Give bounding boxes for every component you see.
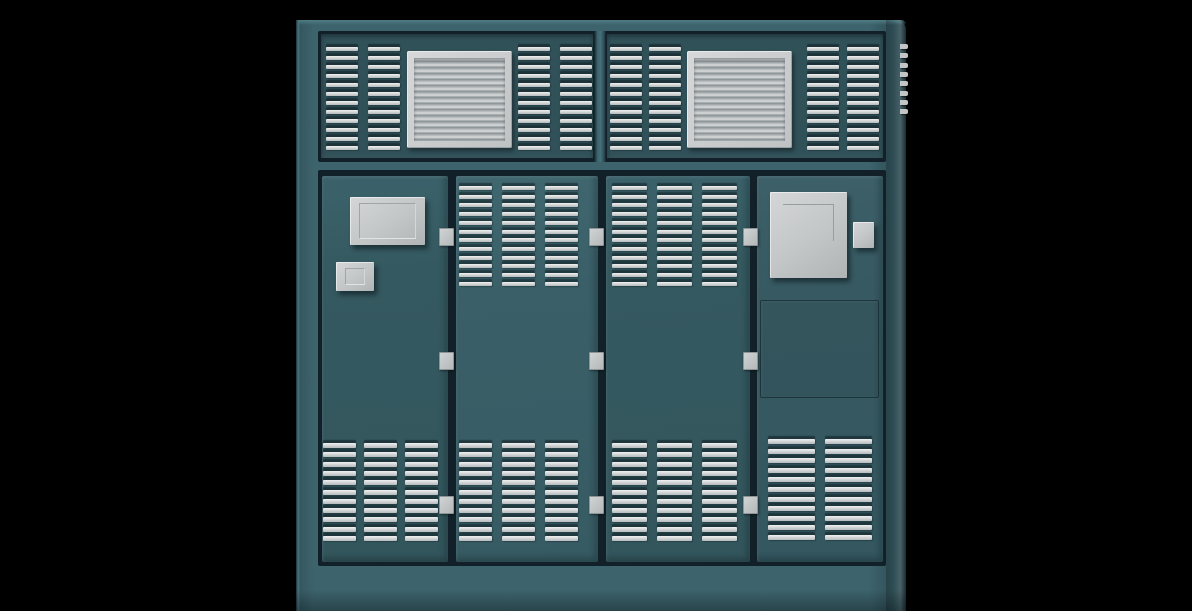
louver-slat bbox=[405, 480, 438, 485]
louver-slat bbox=[847, 56, 879, 60]
louver-slat bbox=[459, 471, 492, 476]
louver-slat bbox=[459, 203, 492, 207]
louver-slat bbox=[825, 458, 872, 463]
louver-slat bbox=[459, 230, 492, 234]
louver-slat bbox=[702, 186, 737, 190]
louver-slat bbox=[502, 230, 535, 234]
louver-slat bbox=[518, 74, 550, 78]
louver-slat bbox=[807, 110, 839, 114]
louver-slat bbox=[459, 527, 492, 532]
door-hinge bbox=[743, 352, 758, 370]
louver-slat bbox=[545, 499, 578, 504]
louver-slat bbox=[649, 92, 681, 96]
louver-slat bbox=[323, 527, 356, 532]
louver-slat bbox=[368, 137, 400, 141]
louver-slat bbox=[612, 203, 647, 207]
side-louver-edge bbox=[900, 109, 908, 114]
louver-slat bbox=[768, 487, 815, 492]
louver-slat bbox=[612, 264, 647, 268]
door4-breaker-box-panel-line bbox=[783, 204, 834, 241]
louver-slat bbox=[502, 203, 535, 207]
door-hinge bbox=[743, 228, 758, 246]
louver-slat bbox=[405, 462, 438, 467]
louver-slat bbox=[545, 536, 578, 541]
louver-slat bbox=[326, 92, 358, 96]
louver-slat bbox=[825, 487, 872, 492]
louver-slat bbox=[702, 471, 737, 476]
top-grille-right bbox=[687, 51, 792, 148]
louver-slat bbox=[702, 282, 737, 286]
louver-slat bbox=[649, 119, 681, 123]
louver-slat bbox=[323, 508, 356, 513]
side-louver-edge bbox=[900, 81, 908, 86]
louver-slat bbox=[459, 212, 492, 216]
louver-slat bbox=[847, 92, 879, 96]
louver-slat bbox=[326, 65, 358, 69]
cabinet bbox=[296, 20, 906, 611]
door-hinge bbox=[439, 496, 454, 514]
louver-slat bbox=[610, 56, 642, 60]
louver-slat bbox=[610, 83, 642, 87]
louver-slat bbox=[649, 65, 681, 69]
louver-slat bbox=[545, 230, 578, 234]
louver-slat bbox=[657, 264, 692, 268]
louver-slat bbox=[326, 137, 358, 141]
louver-slat bbox=[459, 443, 492, 448]
louver-slat bbox=[545, 203, 578, 207]
louver-slat bbox=[502, 247, 535, 251]
louver-slat bbox=[825, 497, 872, 502]
louver-slat bbox=[560, 56, 592, 60]
louver-slat bbox=[657, 452, 692, 457]
louver-slat bbox=[702, 256, 737, 260]
louver-slat bbox=[405, 527, 438, 532]
louver-slat bbox=[459, 256, 492, 260]
louver-slat bbox=[610, 47, 642, 51]
louver-slat bbox=[610, 74, 642, 78]
door1-junction-box-large bbox=[350, 197, 425, 245]
louver-slat bbox=[459, 462, 492, 467]
louver-slat bbox=[502, 256, 535, 260]
louver-slat bbox=[502, 443, 535, 448]
louver-slat bbox=[702, 527, 737, 532]
louver-slat bbox=[825, 449, 872, 454]
louver-slat bbox=[459, 536, 492, 541]
louver-slat bbox=[825, 477, 872, 482]
door-hinge bbox=[589, 352, 604, 370]
louver-slat bbox=[657, 256, 692, 260]
louver-slat bbox=[545, 273, 578, 277]
louver-slat bbox=[502, 499, 535, 504]
louver-slat bbox=[649, 83, 681, 87]
louver-slat bbox=[612, 462, 647, 467]
grille-louvers bbox=[414, 58, 505, 141]
louver-slat bbox=[612, 256, 647, 260]
louver-slat bbox=[612, 247, 647, 251]
louver-slat bbox=[459, 517, 492, 522]
louver-slat bbox=[364, 452, 397, 457]
cabinet-top-bevel bbox=[296, 20, 906, 25]
louver-slat bbox=[847, 119, 879, 123]
louver-slat bbox=[368, 101, 400, 105]
louver-slat bbox=[657, 230, 692, 234]
louver-slat bbox=[368, 47, 400, 51]
louver-slat bbox=[405, 490, 438, 495]
louver-slat bbox=[560, 83, 592, 87]
louver-slat bbox=[326, 83, 358, 87]
louver-slat bbox=[847, 146, 879, 150]
louver-slat bbox=[459, 247, 492, 251]
louver-slat bbox=[657, 443, 692, 448]
louver-slat bbox=[323, 452, 356, 457]
louver-slat bbox=[612, 221, 647, 225]
louver-slat bbox=[545, 471, 578, 476]
louver-slat bbox=[364, 499, 397, 504]
louver-slat bbox=[502, 264, 535, 268]
louver-slat bbox=[518, 83, 550, 87]
louver-slat bbox=[502, 508, 535, 513]
louver-slat bbox=[326, 119, 358, 123]
louver-slat bbox=[326, 47, 358, 51]
louver-slat bbox=[657, 490, 692, 495]
louver-slat bbox=[768, 458, 815, 463]
louver-slat bbox=[326, 74, 358, 78]
louver-slat bbox=[518, 92, 550, 96]
louver-slat bbox=[518, 56, 550, 60]
louver-slat bbox=[560, 65, 592, 69]
louver-slat bbox=[807, 56, 839, 60]
louver-slat bbox=[612, 282, 647, 286]
louver-slat bbox=[768, 506, 815, 511]
louver-slat bbox=[610, 119, 642, 123]
louver-slat bbox=[807, 128, 839, 132]
louver-slat bbox=[545, 508, 578, 513]
louver-slat bbox=[702, 230, 737, 234]
louver-slat bbox=[502, 517, 535, 522]
louver-slat bbox=[560, 92, 592, 96]
louver-slat bbox=[768, 449, 815, 454]
top-vent-divider bbox=[594, 31, 606, 162]
louver-slat bbox=[657, 238, 692, 242]
louver-slat bbox=[847, 47, 879, 51]
louver-slat bbox=[405, 471, 438, 476]
louver-slat bbox=[459, 195, 492, 199]
louver-slat bbox=[847, 74, 879, 78]
louver-slat bbox=[847, 137, 879, 141]
louver-slat bbox=[847, 110, 879, 114]
louver-slat bbox=[612, 490, 647, 495]
louver-slat bbox=[610, 101, 642, 105]
louver-slat bbox=[502, 273, 535, 277]
louver-slat bbox=[768, 468, 815, 473]
louver-slat bbox=[364, 443, 397, 448]
louver-slat bbox=[847, 65, 879, 69]
louver-slat bbox=[364, 471, 397, 476]
louver-slat bbox=[612, 195, 647, 199]
louver-slat bbox=[649, 74, 681, 78]
louver-slat bbox=[502, 527, 535, 532]
louver-slat bbox=[657, 508, 692, 513]
louver-slat bbox=[323, 480, 356, 485]
louver-slat bbox=[518, 101, 550, 105]
louver-slat bbox=[807, 74, 839, 78]
louver-slat bbox=[610, 128, 642, 132]
louver-slat bbox=[368, 110, 400, 114]
louver-slat bbox=[459, 264, 492, 268]
louver-slat bbox=[545, 462, 578, 467]
louver-slat bbox=[502, 452, 535, 457]
louver-slat bbox=[459, 452, 492, 457]
louver-slat bbox=[649, 56, 681, 60]
louver-slat bbox=[657, 203, 692, 207]
louver-slat bbox=[459, 238, 492, 242]
louver-slat bbox=[459, 508, 492, 513]
louver-slat bbox=[612, 212, 647, 216]
side-louver-edge bbox=[900, 91, 908, 96]
louver-slat bbox=[825, 525, 872, 530]
louver-slat bbox=[657, 471, 692, 476]
louver-slat bbox=[702, 443, 737, 448]
louver-slat bbox=[657, 517, 692, 522]
louver-slat bbox=[459, 499, 492, 504]
louver-slat bbox=[657, 186, 692, 190]
louver-slat bbox=[702, 247, 737, 251]
louver-slat bbox=[502, 462, 535, 467]
louver-slat bbox=[702, 508, 737, 513]
louver-slat bbox=[405, 517, 438, 522]
louver-slat bbox=[405, 508, 438, 513]
louver-slat bbox=[768, 535, 815, 540]
louver-slat bbox=[368, 74, 400, 78]
louver-slat bbox=[825, 506, 872, 511]
louver-slat bbox=[612, 517, 647, 522]
door1-junction-box-small-panel-line bbox=[345, 268, 365, 285]
louver-slat bbox=[326, 110, 358, 114]
louver-slat bbox=[702, 490, 737, 495]
louver-slat bbox=[545, 256, 578, 260]
louver-slat bbox=[612, 443, 647, 448]
cabinet-base-shadow bbox=[296, 590, 906, 611]
side-louver-edge bbox=[900, 44, 908, 49]
louver-slat bbox=[323, 471, 356, 476]
louver-slat bbox=[518, 128, 550, 132]
louver-slat bbox=[807, 137, 839, 141]
louver-slat bbox=[657, 247, 692, 251]
louver-slat bbox=[610, 110, 642, 114]
louver-slat bbox=[702, 203, 737, 207]
louver-slat bbox=[825, 468, 872, 473]
door-hinge bbox=[439, 228, 454, 246]
louver-slat bbox=[657, 536, 692, 541]
louver-slat bbox=[612, 238, 647, 242]
louver-slat bbox=[612, 508, 647, 513]
louver-slat bbox=[847, 101, 879, 105]
louver-slat bbox=[702, 238, 737, 242]
louver-slat bbox=[612, 273, 647, 277]
louver-slat bbox=[502, 490, 535, 495]
louver-slat bbox=[825, 535, 872, 540]
side-louver-edge bbox=[900, 63, 908, 68]
door4-breaker-box bbox=[770, 192, 847, 278]
louver-slat bbox=[702, 452, 737, 457]
louver-slat bbox=[368, 92, 400, 96]
louver-slat bbox=[657, 273, 692, 277]
door1-junction-box-small bbox=[336, 262, 374, 291]
louver-slat bbox=[649, 128, 681, 132]
louver-slat bbox=[702, 195, 737, 199]
louver-slat bbox=[545, 282, 578, 286]
louver-slat bbox=[364, 536, 397, 541]
louver-slat bbox=[702, 536, 737, 541]
louver-slat bbox=[459, 282, 492, 286]
louver-slat bbox=[825, 439, 872, 444]
louver-slat bbox=[502, 195, 535, 199]
louver-slat bbox=[545, 490, 578, 495]
louver-slat bbox=[610, 146, 642, 150]
louver-slat bbox=[702, 462, 737, 467]
louver-slat bbox=[405, 499, 438, 504]
louver-slat bbox=[364, 462, 397, 467]
louver-slat bbox=[545, 221, 578, 225]
door1-junction-box-large-panel-line bbox=[359, 203, 416, 239]
louver-slat bbox=[518, 47, 550, 51]
louver-slat bbox=[649, 47, 681, 51]
louver-slat bbox=[560, 137, 592, 141]
side-louver-edge bbox=[900, 100, 908, 105]
louver-slat bbox=[847, 83, 879, 87]
louver-slat bbox=[768, 477, 815, 482]
louver-slat bbox=[368, 65, 400, 69]
louver-slat bbox=[612, 536, 647, 541]
louver-slat bbox=[545, 443, 578, 448]
louver-slat bbox=[560, 110, 592, 114]
louver-slat bbox=[405, 452, 438, 457]
side-louver-edge bbox=[900, 53, 908, 58]
louver-slat bbox=[657, 221, 692, 225]
louver-slat bbox=[502, 212, 535, 216]
louver-slat bbox=[612, 527, 647, 532]
louver-slat bbox=[326, 101, 358, 105]
louver-slat bbox=[560, 74, 592, 78]
louver-slat bbox=[649, 101, 681, 105]
louver-slat bbox=[807, 65, 839, 69]
louver-slat bbox=[323, 536, 356, 541]
louver-slat bbox=[560, 119, 592, 123]
louver-slat bbox=[459, 490, 492, 495]
louver-slat bbox=[518, 65, 550, 69]
louver-slat bbox=[702, 212, 737, 216]
louver-slat bbox=[702, 221, 737, 225]
door-hinge bbox=[743, 496, 758, 514]
louver-slat bbox=[610, 137, 642, 141]
louver-slat bbox=[545, 264, 578, 268]
louver-slat bbox=[702, 273, 737, 277]
louver-slat bbox=[518, 137, 550, 141]
louver-slat bbox=[768, 516, 815, 521]
louver-slat bbox=[649, 110, 681, 114]
louver-slat bbox=[326, 128, 358, 132]
louver-slat bbox=[612, 230, 647, 234]
grille-louvers bbox=[694, 58, 785, 141]
louver-slat bbox=[612, 499, 647, 504]
louver-slat bbox=[545, 452, 578, 457]
louver-slat bbox=[657, 462, 692, 467]
louver-slat bbox=[807, 92, 839, 96]
louver-slat bbox=[502, 536, 535, 541]
louver-slat bbox=[545, 238, 578, 242]
louver-slat bbox=[610, 92, 642, 96]
louver-slat bbox=[364, 490, 397, 495]
louver-slat bbox=[545, 247, 578, 251]
louver-slat bbox=[323, 490, 356, 495]
louver-slat bbox=[545, 186, 578, 190]
louver-slat bbox=[368, 146, 400, 150]
louver-slat bbox=[657, 195, 692, 199]
louver-slat bbox=[364, 480, 397, 485]
louver-slat bbox=[825, 516, 872, 521]
louver-slat bbox=[459, 273, 492, 277]
louver-slat bbox=[545, 480, 578, 485]
side-louver-edge bbox=[900, 72, 908, 77]
louver-slat bbox=[610, 65, 642, 69]
louver-slat bbox=[518, 146, 550, 150]
louver-slat bbox=[502, 238, 535, 242]
louver-slat bbox=[545, 195, 578, 199]
louver-slat bbox=[518, 110, 550, 114]
louver-slat bbox=[612, 480, 647, 485]
louver-slat bbox=[368, 119, 400, 123]
louver-slat bbox=[364, 517, 397, 522]
door-hinge bbox=[589, 228, 604, 246]
louver-slat bbox=[560, 101, 592, 105]
scene-background: { "scene": { "description": "3D render o… bbox=[0, 0, 1192, 611]
louver-slat bbox=[502, 221, 535, 225]
louver-slat bbox=[612, 471, 647, 476]
louver-slat bbox=[545, 212, 578, 216]
louver-slat bbox=[368, 128, 400, 132]
louver-slat bbox=[502, 186, 535, 190]
louver-slat bbox=[768, 525, 815, 530]
louver-slat bbox=[702, 264, 737, 268]
louver-slat bbox=[807, 119, 839, 123]
louver-slat bbox=[364, 527, 397, 532]
louver-slat bbox=[560, 146, 592, 150]
louver-slat bbox=[657, 527, 692, 532]
door-hinge bbox=[439, 352, 454, 370]
louver-slat bbox=[459, 186, 492, 190]
louver-slat bbox=[502, 480, 535, 485]
louver-slat bbox=[807, 146, 839, 150]
louver-slat bbox=[807, 47, 839, 51]
louver-slat bbox=[459, 221, 492, 225]
louver-slat bbox=[326, 56, 358, 60]
louver-slat bbox=[612, 186, 647, 190]
louver-slat bbox=[502, 471, 535, 476]
cabinet-left-edge bbox=[296, 20, 300, 611]
louver-slat bbox=[768, 497, 815, 502]
louver-slat bbox=[702, 480, 737, 485]
louver-slat bbox=[657, 282, 692, 286]
louver-slat bbox=[364, 508, 397, 513]
louver-slat bbox=[368, 56, 400, 60]
louver-slat bbox=[323, 517, 356, 522]
louver-slat bbox=[657, 212, 692, 216]
louver-slat bbox=[649, 146, 681, 150]
louver-slat bbox=[657, 480, 692, 485]
louver-slat bbox=[560, 47, 592, 51]
louver-slat bbox=[560, 128, 592, 132]
door4-handle-block bbox=[853, 222, 874, 248]
